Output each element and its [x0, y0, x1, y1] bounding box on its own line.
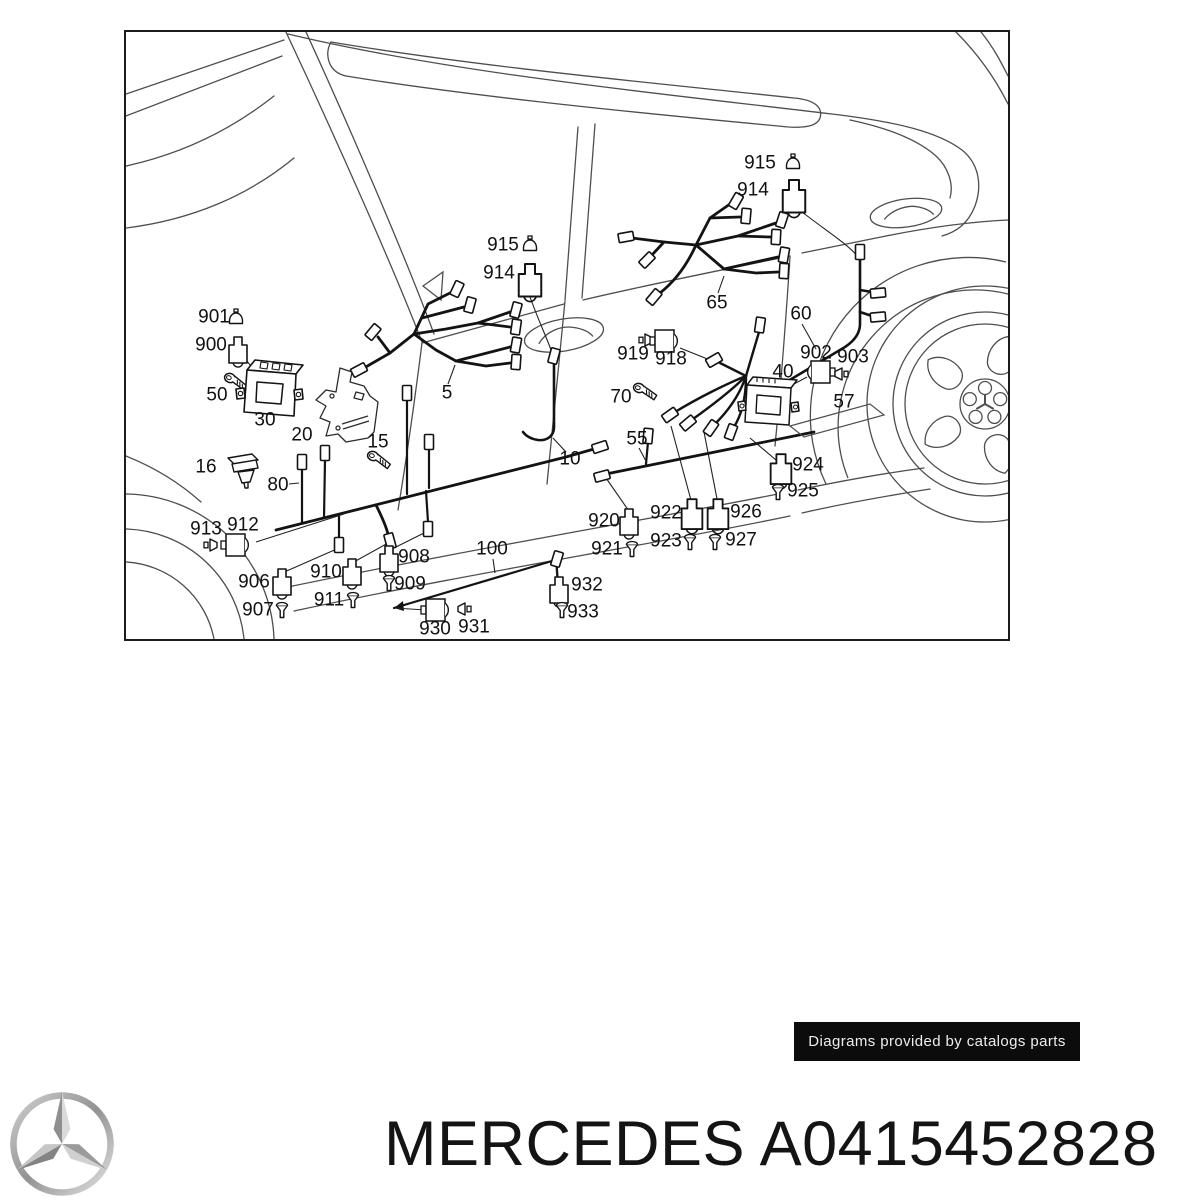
- provider-badge: Diagrams provided by catalogs parts: [794, 1022, 1080, 1061]
- part-label-10: 10: [559, 450, 580, 469]
- part-label-909: 909: [394, 575, 426, 594]
- part-label-918: 918: [655, 350, 687, 369]
- part-label-915: 915: [487, 236, 519, 255]
- part-label-903: 903: [837, 348, 869, 367]
- part-label-57: 57: [833, 393, 854, 412]
- parts-diagram-panel: 9019005030201680155109159149159146560919…: [124, 30, 1010, 641]
- part-label-50: 50: [206, 386, 227, 405]
- part-label-30: 30: [254, 411, 275, 430]
- part-label-900: 900: [195, 336, 227, 355]
- part-label-912: 912: [227, 516, 259, 535]
- part-label-907: 907: [242, 601, 274, 620]
- part-label-55: 55: [626, 430, 647, 449]
- provider-badge-text: Diagrams provided by catalogs parts: [808, 1033, 1065, 1050]
- part-label-906: 906: [238, 573, 270, 592]
- part-label-914: 914: [737, 181, 769, 200]
- part-label-40: 40: [772, 363, 793, 382]
- part-label-15: 15: [367, 433, 388, 452]
- part-label-5: 5: [442, 384, 453, 403]
- part-label-924: 924: [792, 456, 824, 475]
- part-label-914: 914: [483, 264, 515, 283]
- part-label-70: 70: [610, 388, 631, 407]
- part-label-65: 65: [706, 294, 727, 313]
- part-labels-layer: 9019005030201680155109159149159146560919…: [126, 32, 1008, 639]
- part-label-913: 913: [190, 520, 222, 539]
- part-label-908: 908: [398, 548, 430, 567]
- part-number-title: MERCEDES A0415452828: [384, 1108, 1157, 1180]
- part-label-927: 927: [725, 531, 757, 550]
- part-label-16: 16: [195, 458, 216, 477]
- part-label-902: 902: [800, 344, 832, 363]
- part-label-915: 915: [744, 154, 776, 173]
- part-label-910: 910: [310, 563, 342, 582]
- part-label-921: 921: [591, 540, 623, 559]
- part-label-930: 930: [419, 620, 451, 639]
- part-label-100: 100: [476, 540, 508, 559]
- part-label-80: 80: [267, 476, 288, 495]
- part-label-925: 925: [787, 482, 819, 501]
- part-label-932: 932: [571, 576, 603, 595]
- part-label-923: 923: [650, 532, 682, 551]
- part-label-901: 901: [198, 308, 230, 327]
- part-label-911: 911: [314, 591, 344, 610]
- part-label-20: 20: [291, 426, 312, 445]
- part-label-933: 933: [567, 603, 599, 622]
- part-label-919: 919: [617, 345, 649, 364]
- part-label-922: 922: [650, 504, 682, 523]
- part-label-60: 60: [790, 305, 811, 324]
- part-label-931: 931: [458, 618, 490, 637]
- part-label-920: 920: [588, 512, 620, 531]
- mercedes-logo-icon: [6, 1088, 118, 1200]
- part-label-926: 926: [730, 503, 762, 522]
- page: 9019005030201680155109159149159146560919…: [0, 0, 1200, 1200]
